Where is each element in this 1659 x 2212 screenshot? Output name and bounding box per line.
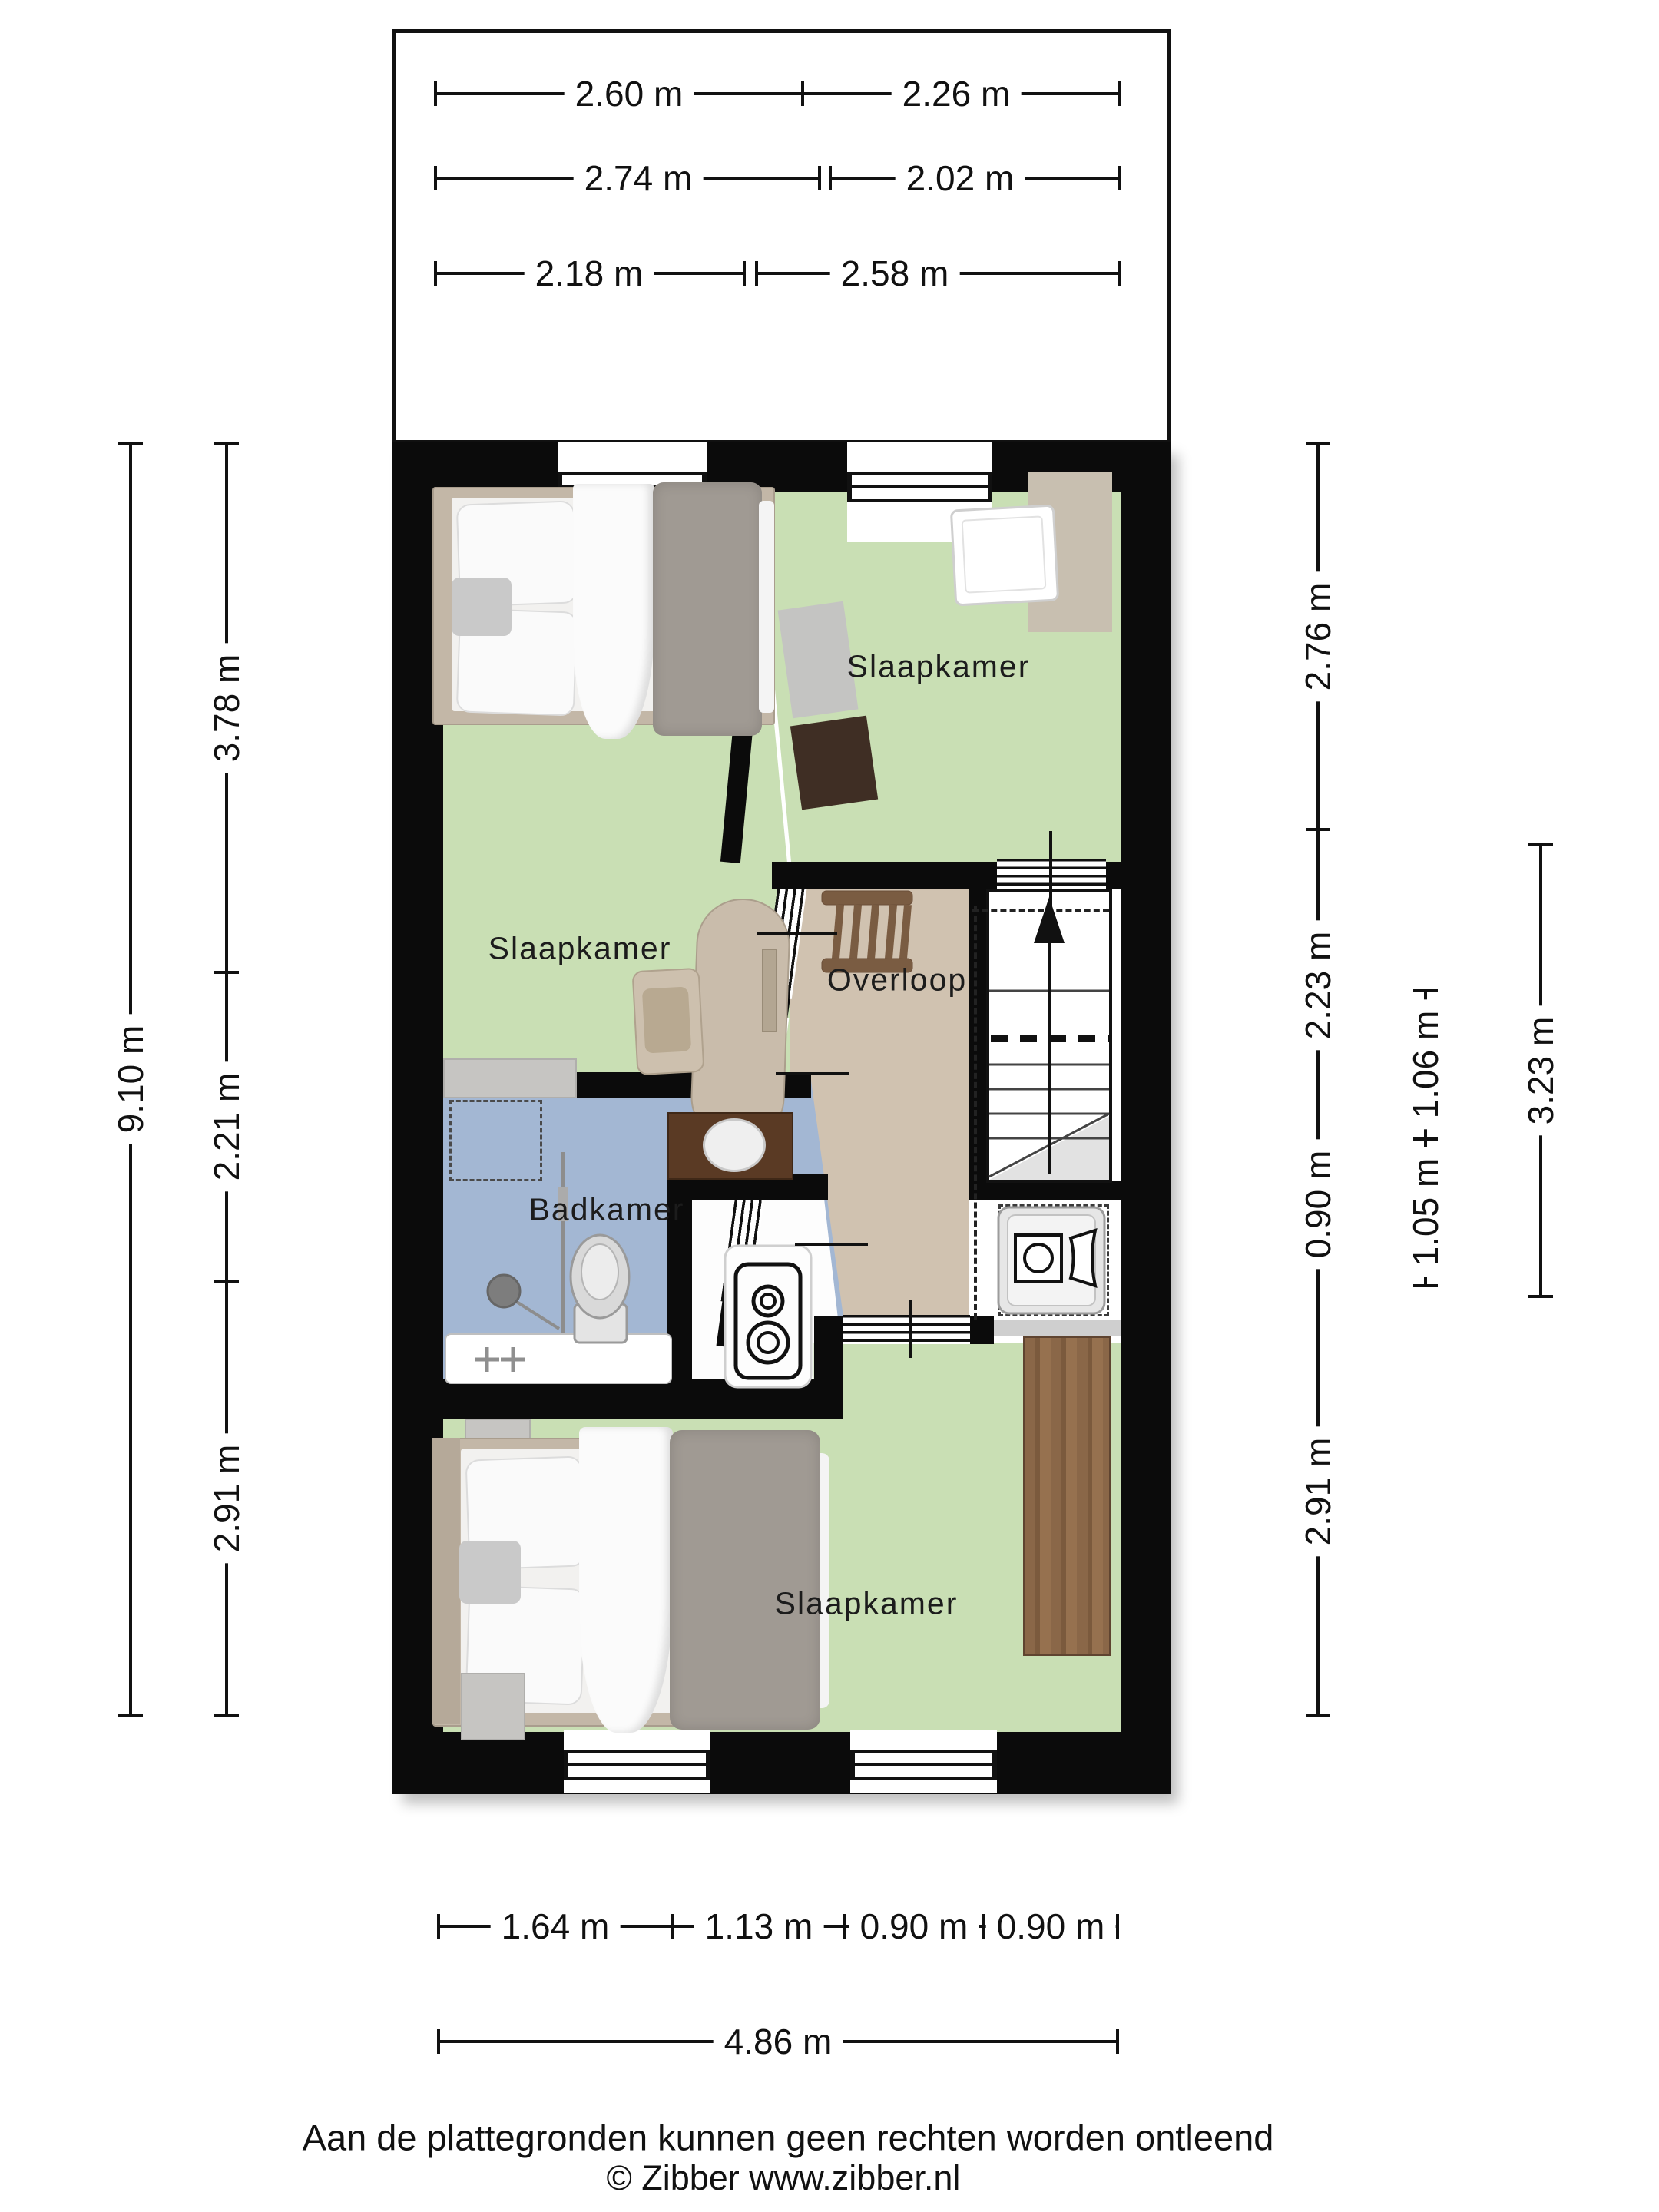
- dim-label: 2.23 m: [1297, 921, 1339, 1051]
- dim-label: 0.90 m: [1297, 1140, 1339, 1270]
- footer-disclaimer: Aan de plattegronden kunnen geen rechten…: [303, 2117, 1274, 2159]
- dim-tick: [437, 2029, 440, 2054]
- dim-tick: [214, 971, 239, 974]
- dim-label: 3.23 m: [1520, 1006, 1561, 1136]
- dim-label: 0.90 m: [986, 1906, 1116, 1947]
- dim-label: 2.21 m: [206, 1062, 247, 1192]
- bathtub-faucet-icon: [475, 1347, 525, 1372]
- shower-icon: [488, 1152, 568, 1333]
- dim-label: 2.76 m: [1297, 572, 1339, 702]
- dim-tick: [982, 1914, 985, 1939]
- dim-tick: [118, 442, 143, 445]
- room-label-bedroom-top-right: Slaapkamer: [847, 649, 1031, 685]
- dim-label: 1.05 m: [1405, 1147, 1446, 1277]
- room-label-bathroom: Badkamer: [529, 1192, 685, 1228]
- dim-label: 1.13 m: [694, 1906, 824, 1947]
- dim-label: 3.78 m: [206, 644, 247, 773]
- dim-tick: [1528, 843, 1553, 846]
- dim-label: 1.64 m: [491, 1906, 621, 1947]
- dim-tick: [1413, 1284, 1438, 1287]
- floorplan-page: 2.60 m 2.26 m 2.74 m 2.02 m 2.18 m 2.58 …: [0, 0, 1659, 2212]
- dim-label: 1.06 m: [1405, 1000, 1446, 1130]
- dim-tick: [118, 1714, 143, 1717]
- toilet-icon: [571, 1235, 629, 1343]
- dim-tick: [214, 1714, 239, 1717]
- footer-copyright: © Zibber www.zibber.nl: [607, 2158, 961, 2198]
- dim-label: 2.91 m: [1297, 1427, 1339, 1557]
- dim-tick: [843, 1914, 846, 1939]
- staircase-up-arrow-icon: [1034, 897, 1065, 1174]
- dim-tick: [1116, 1914, 1119, 1939]
- dim-label: 9.10 m: [110, 1015, 151, 1144]
- dim-label: 4.86 m: [714, 2021, 843, 2062]
- room-label-bedroom-top-left: Slaapkamer: [488, 931, 672, 967]
- dim-label: 0.90 m: [849, 1906, 979, 1947]
- dim-tick: [1306, 442, 1330, 445]
- dim-tick: [1306, 1714, 1330, 1717]
- boiler-unit-icon: [725, 1246, 811, 1387]
- room-label-landing: Overloop: [827, 962, 967, 998]
- dim-label: 2.91 m: [206, 1434, 247, 1564]
- dim-tick: [1116, 2029, 1119, 2054]
- dim-tick: [214, 442, 239, 445]
- room-label-bedroom-bottom: Slaapkamer: [775, 1586, 959, 1622]
- dim-tick: [671, 1914, 674, 1939]
- dim-tick: [1413, 1137, 1438, 1141]
- dim-tick: [1528, 1295, 1553, 1298]
- dim-tick: [214, 1280, 239, 1283]
- loft-ladder-icon: [822, 891, 912, 972]
- washing-machine-icon: [998, 1207, 1104, 1313]
- dim-tick: [437, 1914, 440, 1939]
- dim-tick: [1306, 828, 1330, 831]
- dim-tick: [1413, 989, 1438, 992]
